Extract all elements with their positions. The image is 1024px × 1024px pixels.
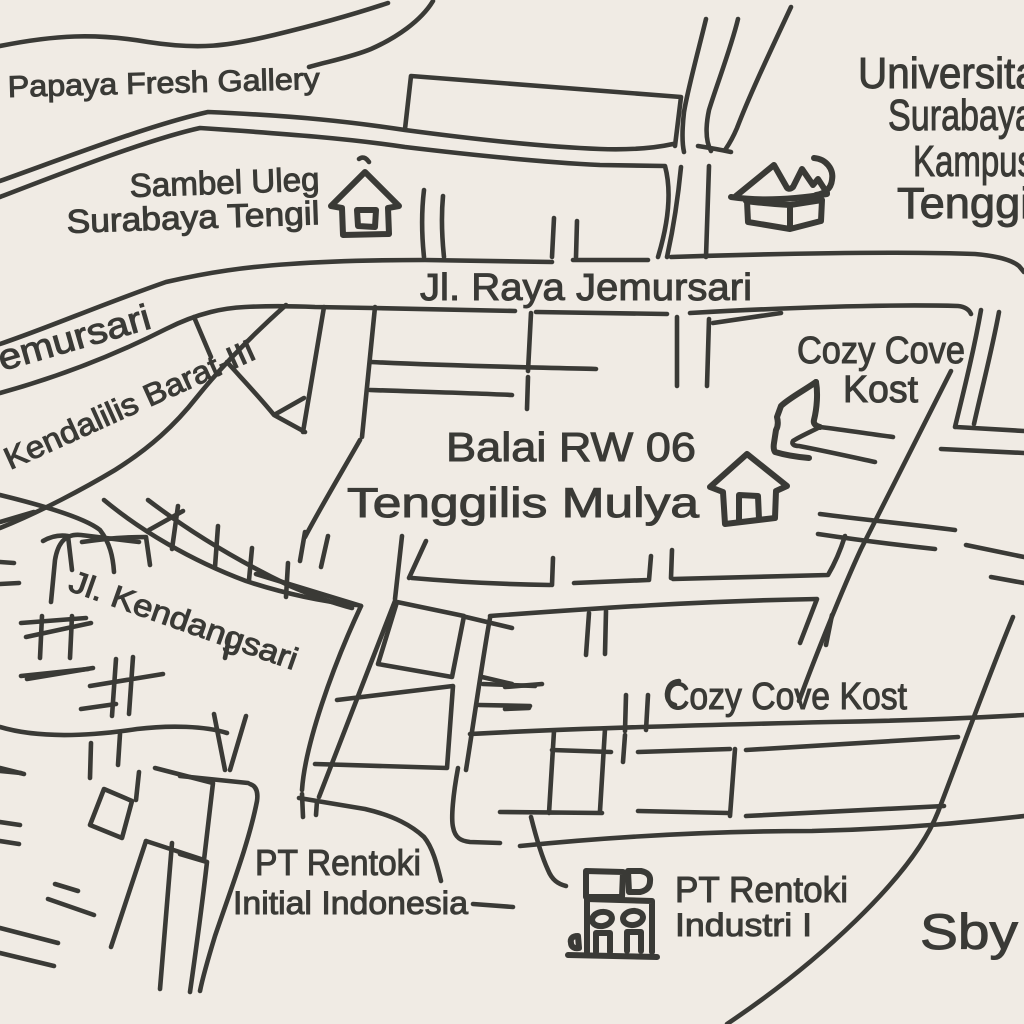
svg-text:Kost: Kost [843,369,918,411]
svg-text:Tenggilis Mulya: Tenggilis Mulya [347,479,700,526]
svg-text:Jl. Raya Jemursari: Jl. Raya Jemursari [420,267,752,309]
svg-text:Surabaya: Surabaya [888,91,1024,140]
svg-text:Cozy Cove Kost: Cozy Cove Kost [665,676,907,718]
svg-text:Sby: Sby [920,904,1018,960]
svg-text:Tenggilis: Tenggilis [897,179,1024,228]
svg-text:Industri I: Industri I [675,907,812,943]
svg-text:Balai RW 06: Balai RW 06 [446,424,696,470]
svg-text:PT Rentoki: PT Rentoki [255,842,421,883]
svg-text:Cozy Cove: Cozy Cove [797,330,965,372]
svg-text:Initial Indonesia: Initial Indonesia [233,885,468,921]
svg-text:PT Rentoki: PT Rentoki [675,869,848,910]
